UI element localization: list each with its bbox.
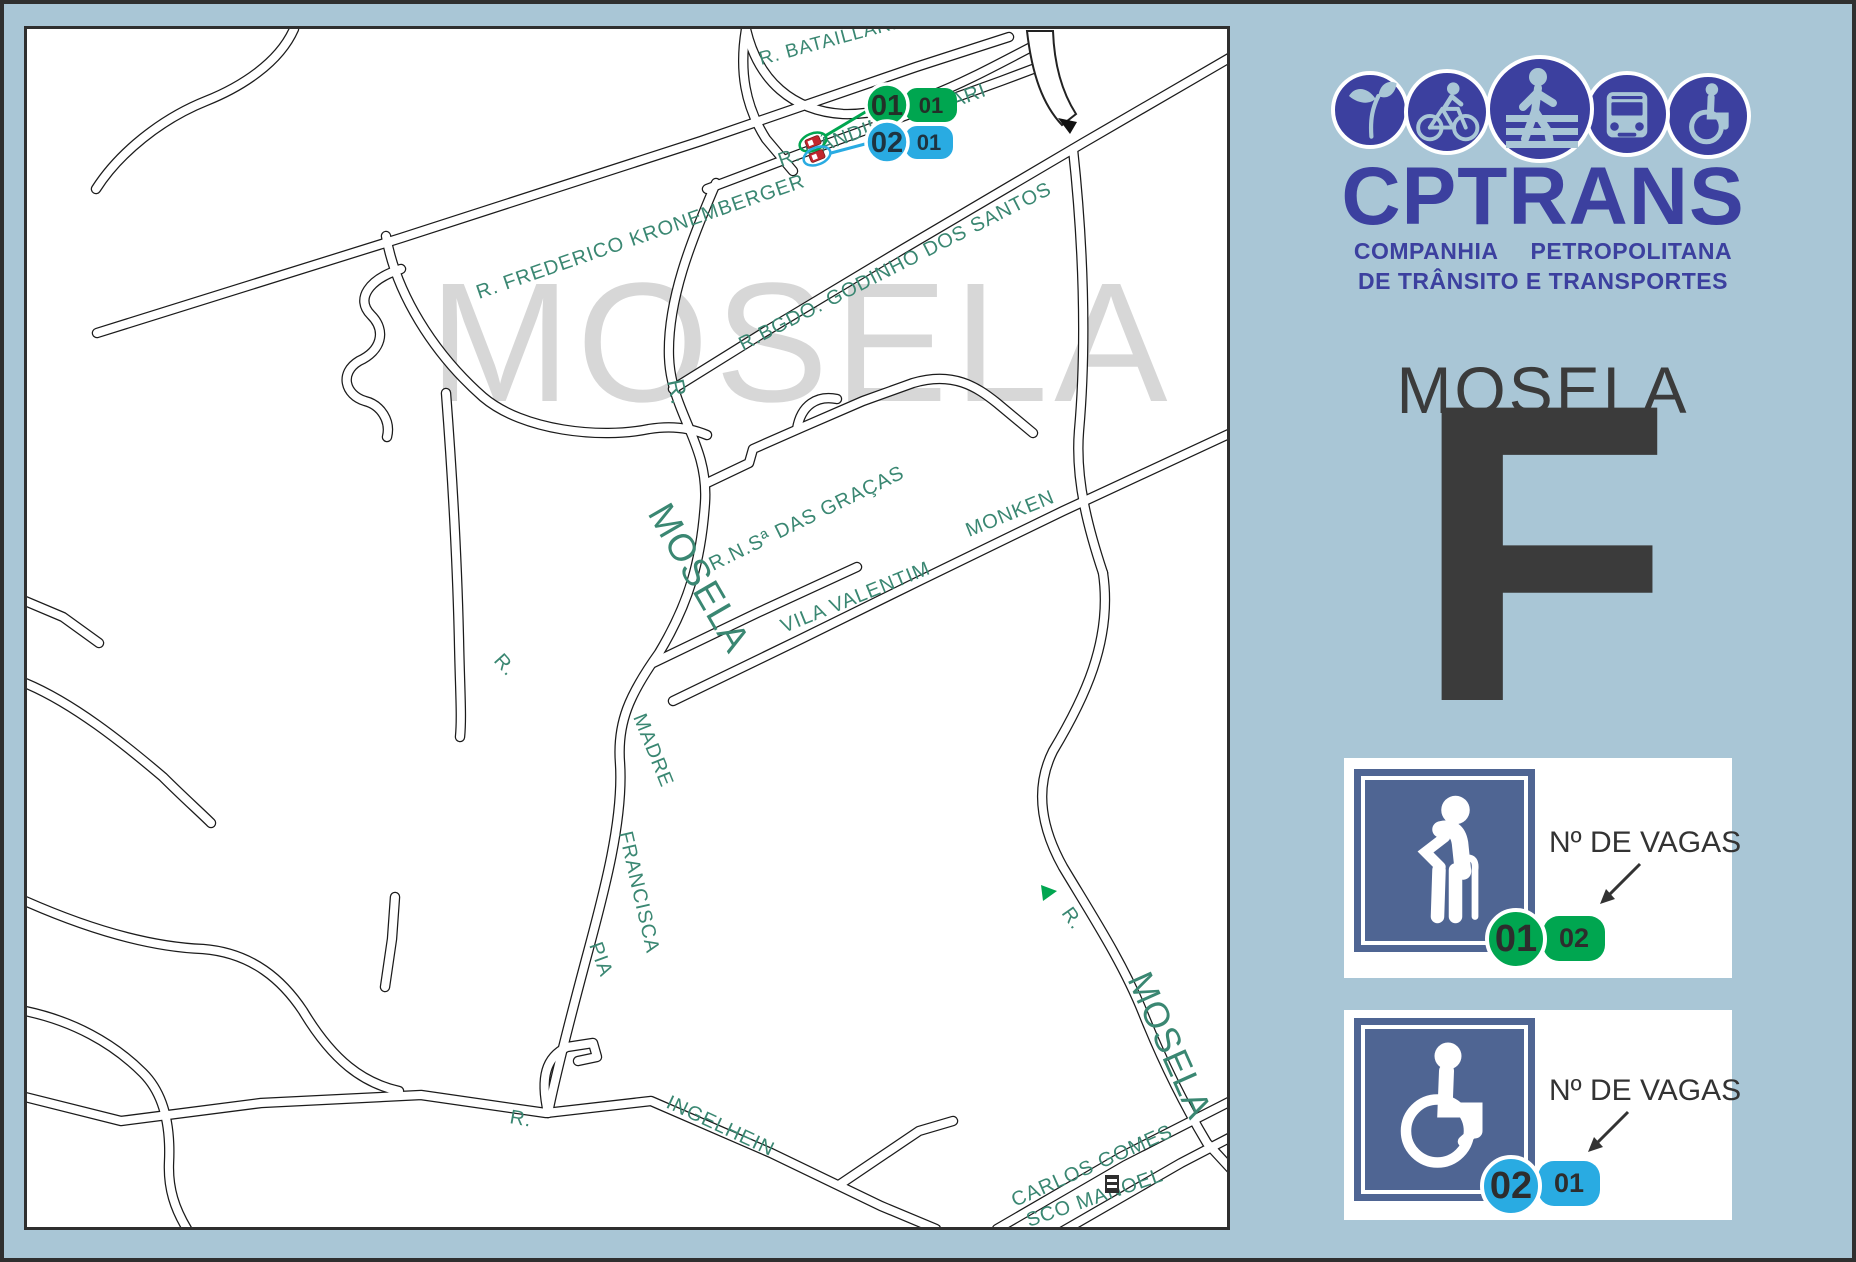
street-label: MOSELA xyxy=(1120,966,1221,1125)
street-label: R. BATAILLARD xyxy=(757,29,908,70)
street-label: MADRE xyxy=(628,711,677,791)
legend-card-wheelchair: Nº DE VAGAS 01 02 xyxy=(1344,1010,1732,1220)
vagas-arrow-icon xyxy=(1560,1104,1650,1179)
vagas-label: Nº DE VAGAS xyxy=(1549,1074,1741,1108)
vagas-label: Nº DE VAGAS xyxy=(1549,826,1741,860)
cyclist-icon xyxy=(1404,69,1490,155)
circle-badge: 02 xyxy=(1480,1155,1542,1217)
street-map: MOSELAR. BATAILLARDR. FREDERICO KRONEMBE… xyxy=(27,29,1227,1227)
street-label: INGELHEIN xyxy=(663,1092,778,1161)
plant-icon xyxy=(1331,71,1409,149)
zone-letter: F xyxy=(1243,388,1843,720)
cyan-pill-value: 01 xyxy=(917,130,941,155)
street xyxy=(446,393,461,737)
map-banner-shape xyxy=(1027,31,1077,134)
pedestrian-icon xyxy=(1486,55,1594,163)
vagas-arrow-icon xyxy=(1570,856,1660,931)
brand-subtitle-1: COMPANHIA PETROPOLITANA xyxy=(1243,238,1843,265)
cyan-circle-value: 02 xyxy=(871,127,903,159)
brand-name: CPTRANS xyxy=(1243,150,1843,244)
street xyxy=(27,901,399,1091)
street-label: R. xyxy=(508,1106,533,1131)
parking-sign-canvas: MOSELAR. BATAILLARDR. FREDERICO KRONEMBE… xyxy=(0,0,1856,1262)
legend-card-elderly: Nº DE VAGAS 02 01 xyxy=(1344,758,1732,978)
street-label: R. xyxy=(661,377,693,408)
green-pill-value: 01 xyxy=(919,93,943,118)
direction-arrow-icon xyxy=(1041,885,1057,901)
street xyxy=(673,433,1227,701)
street-label: PIA xyxy=(584,939,617,980)
street-label: R. xyxy=(489,650,520,681)
street xyxy=(96,29,294,189)
building-icon xyxy=(1105,1175,1119,1193)
circle-badge: 01 xyxy=(1485,908,1547,970)
brand-subtitle-2: DE TRÂNSITO E TRANSPORTES xyxy=(1243,268,1843,295)
map-panel: MOSELAR. BATAILLARDR. FREDERICO KRONEMBE… xyxy=(24,26,1230,1230)
street-label: R.N.Sª DAS GRAÇAS xyxy=(706,462,908,576)
banner-tip-icon xyxy=(1058,118,1077,134)
street xyxy=(27,683,211,823)
street xyxy=(347,269,401,437)
bus-icon xyxy=(1584,71,1670,157)
wheelchair-icon xyxy=(1665,73,1751,159)
green-circle-value: 01 xyxy=(871,90,903,122)
street-label: FRANCISCA xyxy=(614,829,663,955)
